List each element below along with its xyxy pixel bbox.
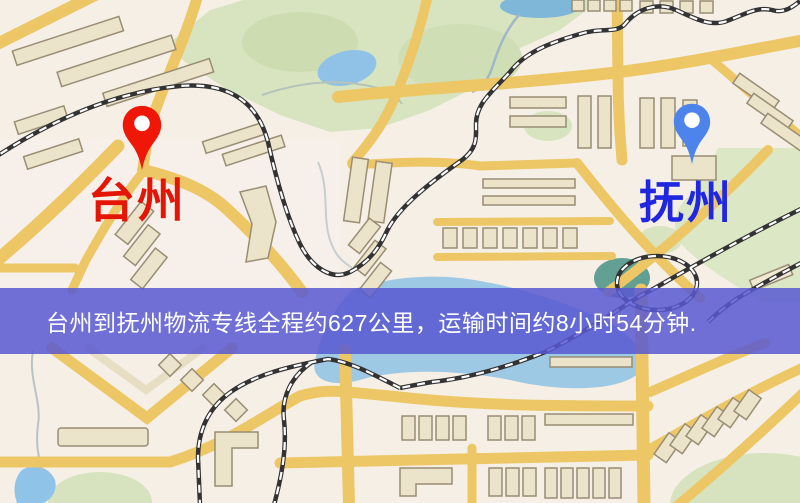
route-info-text: 台州到抚州物流专线全程约627公里，运输时间约8小时54分钟. [0, 304, 697, 338]
route-info-banner: 台州到抚州物流专线全程约627公里，运输时间约8小时54分钟. [0, 288, 800, 354]
destination-city-label: 抚州 [639, 181, 733, 226]
origin-pin-hole [134, 116, 150, 132]
origin-pin-body [123, 106, 162, 170]
logistics-map-image: 台州 抚州 台州到抚州物流专线全程约627公里，运输时间约8小时54分钟. [0, 0, 800, 503]
map-background [0, 0, 800, 503]
origin-city-label: 台州 [88, 179, 186, 226]
destination-pin-hole [684, 112, 700, 128]
destination-pin-icon [668, 102, 716, 166]
origin-pin-icon [120, 104, 164, 172]
